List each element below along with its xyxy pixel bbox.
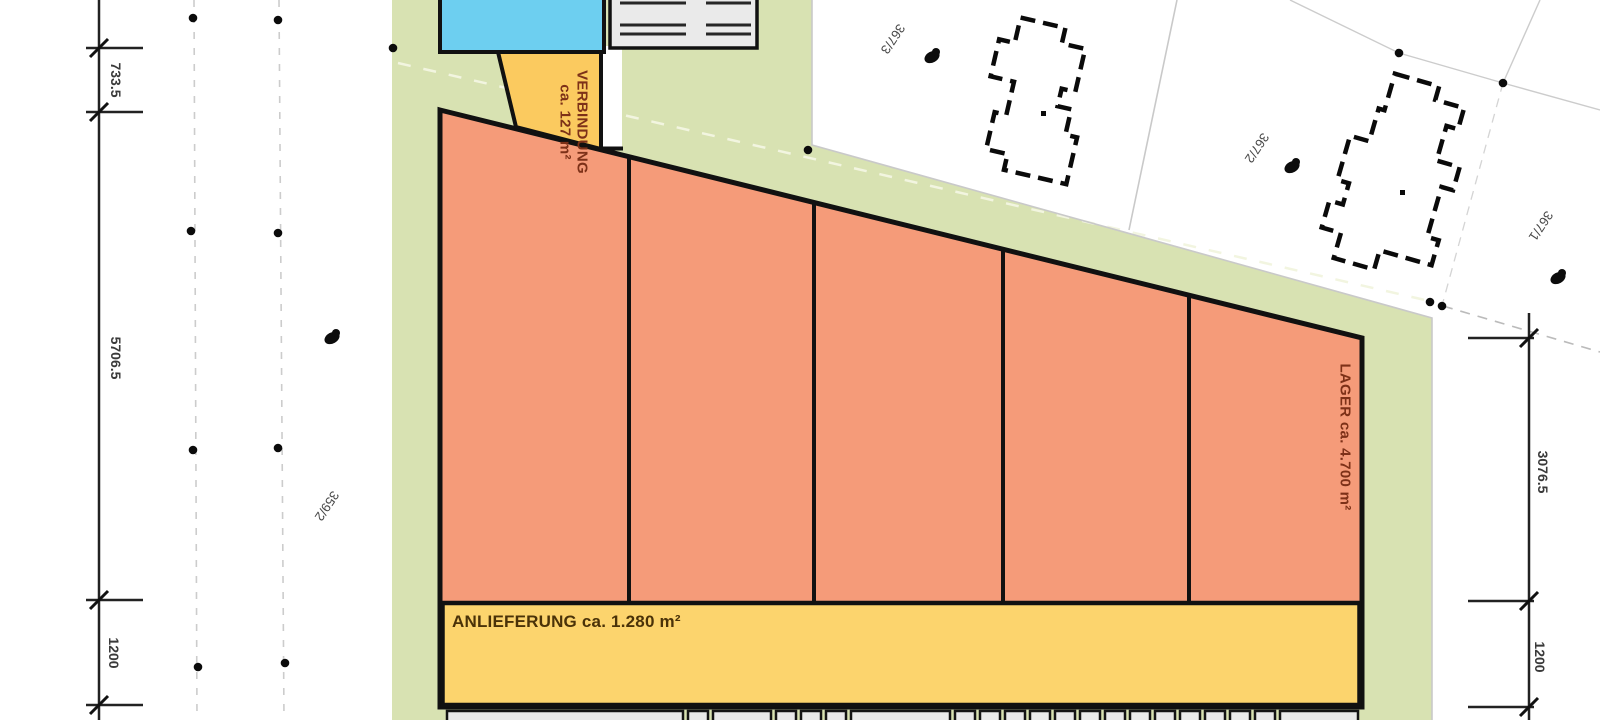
boundary-point <box>189 446 198 455</box>
existing-building-strip <box>603 46 622 149</box>
boundary-point <box>274 16 283 25</box>
boundary-point <box>1395 49 1404 58</box>
boundary-point <box>274 444 283 453</box>
loading-dock <box>447 711 683 720</box>
verbindung-label: VERBINDUNG ca. 127 m² <box>556 70 591 174</box>
loading-dock <box>1105 711 1125 720</box>
loading-dock <box>776 711 796 720</box>
loading-dock <box>713 711 771 720</box>
loading-dock <box>688 711 708 720</box>
existing-building-center-mark <box>1041 111 1046 116</box>
boundary-point <box>1438 302 1447 311</box>
loading-dock <box>1005 711 1025 720</box>
blue-building <box>440 0 604 52</box>
loading-dock <box>1180 711 1200 720</box>
loading-dock <box>955 711 975 720</box>
loading-dock <box>1255 711 1275 720</box>
boundary-point <box>187 227 196 236</box>
loading-dock <box>1130 711 1150 720</box>
loading-docks <box>447 711 1358 720</box>
dimension-label-left-bottom: 1200 <box>106 637 122 668</box>
boundary-point <box>189 14 198 23</box>
shelving-building <box>610 0 757 48</box>
boundary-point <box>1426 298 1435 307</box>
dimension-label-left-middle: 5706.5 <box>108 337 124 380</box>
site-plan-svg <box>0 0 1600 720</box>
dimension-label-left-top: 733.5 <box>108 62 124 97</box>
dimension-label-right-bottom: 1200 <box>1532 641 1548 672</box>
verbindung-name: VERBINDUNG <box>573 70 590 174</box>
boundary-point <box>389 44 398 53</box>
boundary-point <box>281 659 290 668</box>
loading-dock <box>1280 711 1358 720</box>
loading-dock <box>1030 711 1050 720</box>
loading-dock <box>801 711 821 720</box>
loading-dock <box>980 711 1000 720</box>
boundary-point <box>1499 79 1508 88</box>
anlieferung-label: ANLIEFERUNG ca. 1.280 m² <box>452 612 681 632</box>
boundary-point <box>804 146 813 155</box>
loading-dock <box>1205 711 1225 720</box>
boundary-point <box>274 229 283 238</box>
loading-dock <box>1230 711 1250 720</box>
site-plan: VERBINDUNG ca. 127 m² LAGER ca. 4.700 m²… <box>0 0 1600 720</box>
lager-label: LAGER ca. 4.700 m² <box>1337 363 1354 510</box>
boundary-point <box>194 663 203 672</box>
existing-building-center-mark <box>1400 190 1405 195</box>
loading-dock <box>1080 711 1100 720</box>
loading-dock <box>826 711 846 720</box>
loading-dock <box>851 711 950 720</box>
loading-dock <box>1055 711 1075 720</box>
dimension-label-right-top: 3076.5 <box>1535 451 1551 494</box>
loading-dock <box>1155 711 1175 720</box>
verbindung-area: ca. 127 m² <box>556 70 573 174</box>
